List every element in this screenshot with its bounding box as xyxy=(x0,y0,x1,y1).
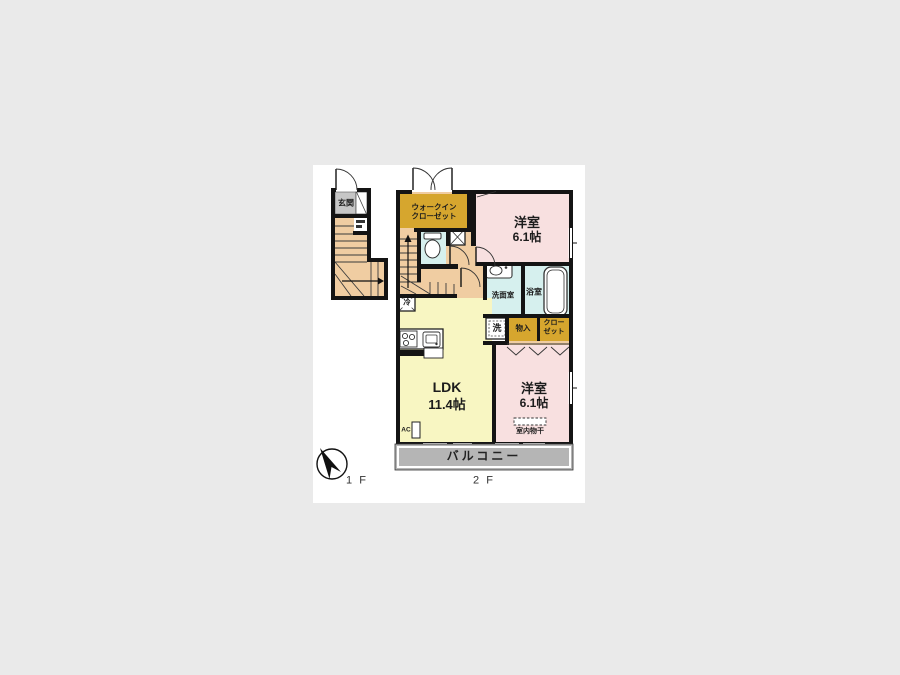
entrance-door xyxy=(336,169,357,190)
bathroom-label: 浴室 xyxy=(526,287,542,296)
indoor-drying-rail xyxy=(514,418,546,425)
washroom-label: 洗面室 xyxy=(492,292,515,301)
bathtub-icon xyxy=(544,267,567,316)
floor2-label: 2 F xyxy=(473,475,495,488)
floorplan-page: 玄関 ウォークイン クローゼット 洋室 6.1帖 洗面室 浴室 洗 物入 クロー… xyxy=(0,0,900,675)
floor1-plan xyxy=(331,169,388,300)
kitchen-sink-icon xyxy=(423,332,440,347)
closet-label: クロー ゼット xyxy=(544,320,565,337)
walk-in-closet-label: ウォークイン クローゼット xyxy=(412,203,457,220)
bedroom-top-label: 洋室 6.1帖 xyxy=(513,215,542,245)
window-bedroom-bottom-right xyxy=(569,372,578,404)
ac-label: AC xyxy=(401,426,410,433)
wic-double-door xyxy=(413,168,452,190)
compass-north-arrow-icon xyxy=(317,448,347,479)
ac-unit xyxy=(412,422,420,438)
storage-label: 物入 xyxy=(516,325,531,334)
window-bedroom-top-right xyxy=(569,228,578,258)
kitchen-counter xyxy=(398,329,443,358)
floor1-label: 1 F xyxy=(346,475,368,488)
indoor-drying-label: 室内物干 xyxy=(516,428,544,436)
washer-label: 洗 xyxy=(491,323,502,333)
floor-plan-drawing xyxy=(0,0,900,675)
ldk-label: LDK 11.4帖 xyxy=(428,379,466,413)
toilet-icon xyxy=(424,233,441,258)
stove-icon xyxy=(400,331,417,347)
fridge-label: 冷 xyxy=(402,299,412,308)
understair-door-symbol xyxy=(356,220,365,223)
balcony-label: バルコニー xyxy=(447,450,522,464)
ldk-room xyxy=(400,298,492,442)
entrance-label: 玄関 xyxy=(338,198,354,207)
bedroom-bottom-label: 洋室 6.1帖 xyxy=(520,381,549,411)
